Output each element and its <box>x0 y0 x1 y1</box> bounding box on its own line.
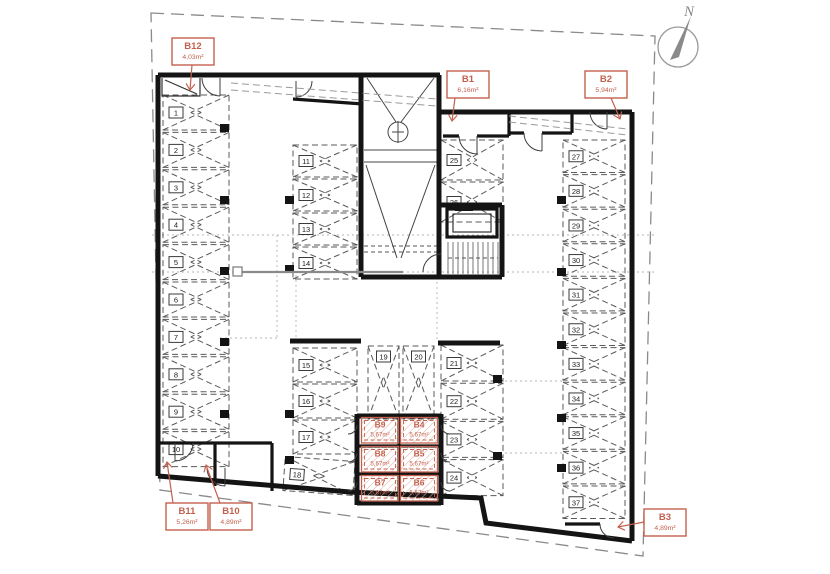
storage-label-id: B3 <box>659 512 671 523</box>
storage-unit-id: B5 <box>414 449 425 459</box>
parking-space-number: 11 <box>302 157 310 166</box>
parking-space: 17 <box>293 420 357 454</box>
structural-column <box>493 452 502 460</box>
storage-label-area: 4,89m² <box>220 519 242 526</box>
parking-space: 14 <box>293 247 357 279</box>
parking-space-number: 34 <box>572 394 580 403</box>
parking-space: 32 <box>563 313 625 346</box>
parking-space-number: 16 <box>302 397 310 406</box>
parking-space: 3 <box>163 170 229 205</box>
elevator-shaft <box>447 209 497 237</box>
parking-space: 33 <box>563 348 625 381</box>
north-arrow-needle <box>670 16 691 60</box>
parking-space: 37 <box>563 486 625 519</box>
storage-unit: B75,67m² <box>362 476 399 502</box>
storage-unit-area: 5,67m² <box>370 461 389 468</box>
storage-unit-area: 5,67m² <box>370 432 389 439</box>
parking-space-number: 12 <box>302 191 310 200</box>
parking-space-number: 25 <box>450 156 458 165</box>
storage-label-id: B11 <box>179 506 197 517</box>
parking-space-number: 8 <box>174 370 178 379</box>
parking-space: 9 <box>163 394 229 429</box>
parking-space-number: 22 <box>450 397 458 406</box>
storage-unit: B65,67m² <box>401 476 438 502</box>
parking-space-number: 9 <box>174 408 178 417</box>
storage-label-area: 6,16m² <box>457 87 479 94</box>
parking-space-number: 18 <box>293 470 302 480</box>
storage-unit-id: B4 <box>414 420 425 430</box>
parking-space-number: 19 <box>379 353 387 362</box>
storage-label-id: B2 <box>600 74 612 85</box>
parking-space-number: 1 <box>174 109 178 118</box>
parking-space: 11 <box>293 145 357 177</box>
ramp-dashed-lines <box>364 246 437 252</box>
parking-space: 26 <box>441 182 503 222</box>
parking-space: 7 <box>163 319 229 354</box>
storage-unit: B85,67m² <box>362 447 399 473</box>
storage-unit-area: 5,67m² <box>370 490 389 497</box>
parking-space: 15 <box>293 348 357 382</box>
parking-space-number: 32 <box>572 325 580 334</box>
structural-column <box>285 196 294 204</box>
parking-space: 6 <box>163 282 229 317</box>
parking-space: 35 <box>563 417 625 450</box>
parking-space: 20 <box>403 346 434 419</box>
parking-space-number: 14 <box>302 259 310 268</box>
parking-space: 2 <box>163 132 229 167</box>
storage-unit-id: B6 <box>414 478 425 488</box>
parking-space: 16 <box>293 384 357 418</box>
storage-label-id: B10 <box>222 506 239 517</box>
vehicle-ramp <box>364 78 437 258</box>
parking-space-number: 28 <box>572 187 580 196</box>
ramp-slope-lines <box>364 78 437 258</box>
storage-label-id: B1 <box>462 74 475 85</box>
structural-column <box>557 196 566 204</box>
section-marker-square <box>233 267 242 276</box>
parking-space: 25 <box>441 140 503 180</box>
parking-space: 19 <box>368 346 399 419</box>
storage-label-area: 4,03m² <box>182 54 204 61</box>
parking-space-number: 17 <box>302 433 310 442</box>
stair-core <box>447 206 498 274</box>
structural-column <box>557 268 566 276</box>
parking-space: 30 <box>563 244 625 276</box>
parking-space: 5 <box>163 245 229 280</box>
storage-label-area: 5,94m² <box>595 87 617 94</box>
parking-space: 24 <box>441 460 503 496</box>
storage-label-area: 4,89m² <box>654 525 676 532</box>
parking-space: 12 <box>293 179 357 211</box>
parking-space-number: 7 <box>174 333 178 342</box>
parking-space: 34 <box>563 382 625 415</box>
parking-space-number: 5 <box>174 258 178 267</box>
parking-space: 31 <box>563 278 625 311</box>
structural-column <box>220 124 229 132</box>
parking-space-number: 3 <box>174 183 178 192</box>
structural-column <box>285 410 294 418</box>
parking-space-number: 33 <box>572 360 580 369</box>
storage-unit-id: B7 <box>375 478 386 488</box>
parking-space: 28 <box>563 175 625 208</box>
corridor-dashes <box>231 83 628 135</box>
storage-unit-id: B8 <box>375 449 386 459</box>
floor-plan: 1234567891011121314151617181920212223242… <box>0 0 830 574</box>
parking-space-number: 24 <box>450 474 458 483</box>
parking-space-number: 29 <box>572 221 580 230</box>
parking-space-number: 31 <box>572 291 580 300</box>
parking-space-number: 6 <box>174 296 178 305</box>
north-label: N <box>683 4 695 20</box>
storage-label-leader <box>167 462 173 503</box>
storage-label: B124,03m² <box>172 38 214 90</box>
parking-space-number: 37 <box>572 498 580 507</box>
structural-column <box>220 338 229 346</box>
structural-column <box>493 375 502 383</box>
storage-unit-id: B9 <box>375 420 386 430</box>
storage-closet-b12 <box>162 78 200 96</box>
structural-column <box>220 267 229 275</box>
parking-space: 27 <box>563 140 625 173</box>
parking-space: 13 <box>293 213 357 245</box>
storage-label: B104,89m² <box>206 465 252 530</box>
structural-column <box>220 196 229 204</box>
parking-space: 36 <box>563 451 625 484</box>
parking-space-number: 2 <box>174 146 178 155</box>
parking-space: 22 <box>441 383 503 419</box>
north-arrow: N <box>658 4 698 67</box>
storage-unit: B95,67m² <box>362 418 399 444</box>
storage-unit-area: 5,67m² <box>409 490 428 497</box>
parking-space-number: 27 <box>572 152 580 161</box>
structural-column <box>557 414 566 422</box>
elevator-car <box>453 214 491 232</box>
ramp-gate-post <box>392 121 404 143</box>
parking-space-number: 4 <box>174 221 178 230</box>
parking-space-number: 36 <box>572 464 580 473</box>
parking-space: 1 <box>163 95 229 130</box>
storage-unit-area: 5,67m² <box>409 432 428 439</box>
parking-space: 29 <box>563 209 625 242</box>
parking-space-number: 20 <box>414 353 422 362</box>
parking-space-number: 23 <box>450 435 458 444</box>
structural-column <box>557 464 566 472</box>
parking-space-number: 21 <box>450 359 458 368</box>
parking-space-number: 13 <box>302 225 310 234</box>
parking-space: 8 <box>163 357 229 392</box>
parking-space: 4 <box>163 207 229 242</box>
structural-column <box>557 341 566 349</box>
parking-space-number: 35 <box>572 429 580 438</box>
parking-space-number: 10 <box>172 445 180 454</box>
storage-unit: B45,67m² <box>401 418 438 444</box>
storage-label-area: 5,26m² <box>176 519 198 526</box>
parking-space-number: 15 <box>302 361 310 370</box>
storage-label-leader <box>206 465 220 503</box>
parking-space-number: 30 <box>572 256 580 265</box>
parking-space: 10 <box>163 432 229 467</box>
structural-column <box>220 410 229 418</box>
structural-column <box>285 456 294 464</box>
storage-unit: B55,67m² <box>401 447 438 473</box>
storage-label-id: B12 <box>184 41 201 52</box>
storage-label: B34,89m² <box>618 509 686 536</box>
storage-unit-area: 5,67m² <box>409 461 428 468</box>
storage-label-leader <box>611 98 620 119</box>
